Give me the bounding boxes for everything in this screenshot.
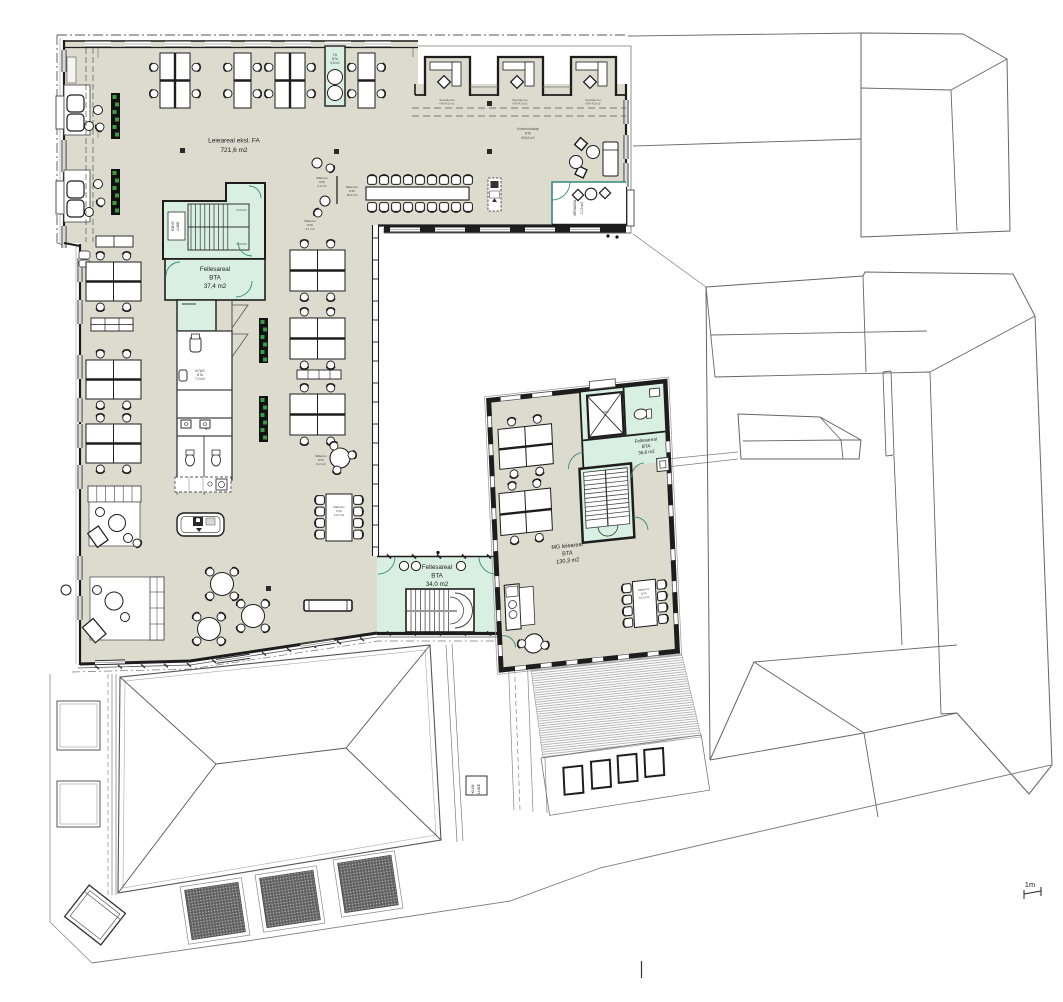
svg-text:RØYK: RØYK bbox=[171, 220, 175, 230]
svg-text:Fellesareal: Fellesareal bbox=[200, 266, 230, 273]
svg-text:Heis: Heis bbox=[603, 409, 610, 414]
svg-text:BTA: BTA bbox=[431, 573, 443, 580]
svg-text:37,4 m2: 37,4 m2 bbox=[204, 283, 227, 290]
svg-text:Fellesareal: Fellesareal bbox=[422, 564, 452, 571]
svg-text:WC: WC bbox=[204, 427, 210, 431]
svg-text:3,5 m2: 3,5 m2 bbox=[330, 61, 340, 65]
svg-text:840,8 m2: 840,8 m2 bbox=[521, 136, 535, 140]
svg-text:Kontorlandskap: Kontorlandskap bbox=[517, 127, 539, 131]
svg-text:14,3 m2: 14,3 m2 bbox=[334, 513, 345, 517]
svg-text:721,6 m2: 721,6 m2 bbox=[220, 147, 247, 154]
svg-text:NTA 4,5 m2: NTA 4,5 m2 bbox=[439, 102, 454, 106]
svg-text:38,3 m2: 38,3 m2 bbox=[347, 193, 358, 197]
svg-text:4,1 m2: 4,1 m2 bbox=[305, 227, 315, 231]
svg-text:34,0 m2: 34,0 m2 bbox=[426, 581, 449, 588]
svg-text:10,3 m2: 10,3 m2 bbox=[580, 202, 584, 214]
svg-text:4,2 m2: 4,2 m2 bbox=[317, 184, 327, 188]
svg-text:7,0 m2: 7,0 m2 bbox=[195, 377, 205, 381]
svg-text:BTA: BTA bbox=[642, 443, 652, 449]
svg-text:LUKE: LUKE bbox=[476, 783, 481, 794]
svg-text:KUM: KUM bbox=[470, 785, 475, 794]
svg-text:NTA 4,5 m2: NTA 4,5 m2 bbox=[585, 102, 600, 106]
svg-text:VERANDA: VERANDA bbox=[573, 199, 577, 216]
svg-text:Leieareal eksl. FA: Leieareal eksl. FA bbox=[208, 138, 260, 145]
svg-text:NTA 4,5 m2: NTA 4,5 m2 bbox=[512, 102, 527, 106]
svg-text:1m: 1m bbox=[1025, 880, 1035, 889]
svg-text:BTA: BTA bbox=[209, 275, 221, 282]
svg-text:9,3 m2: 9,3 m2 bbox=[316, 462, 326, 466]
svg-text:NTA: NTA bbox=[525, 132, 532, 136]
svg-text:LUKE: LUKE bbox=[176, 221, 180, 231]
svg-text:BTA: BTA bbox=[562, 550, 573, 557]
